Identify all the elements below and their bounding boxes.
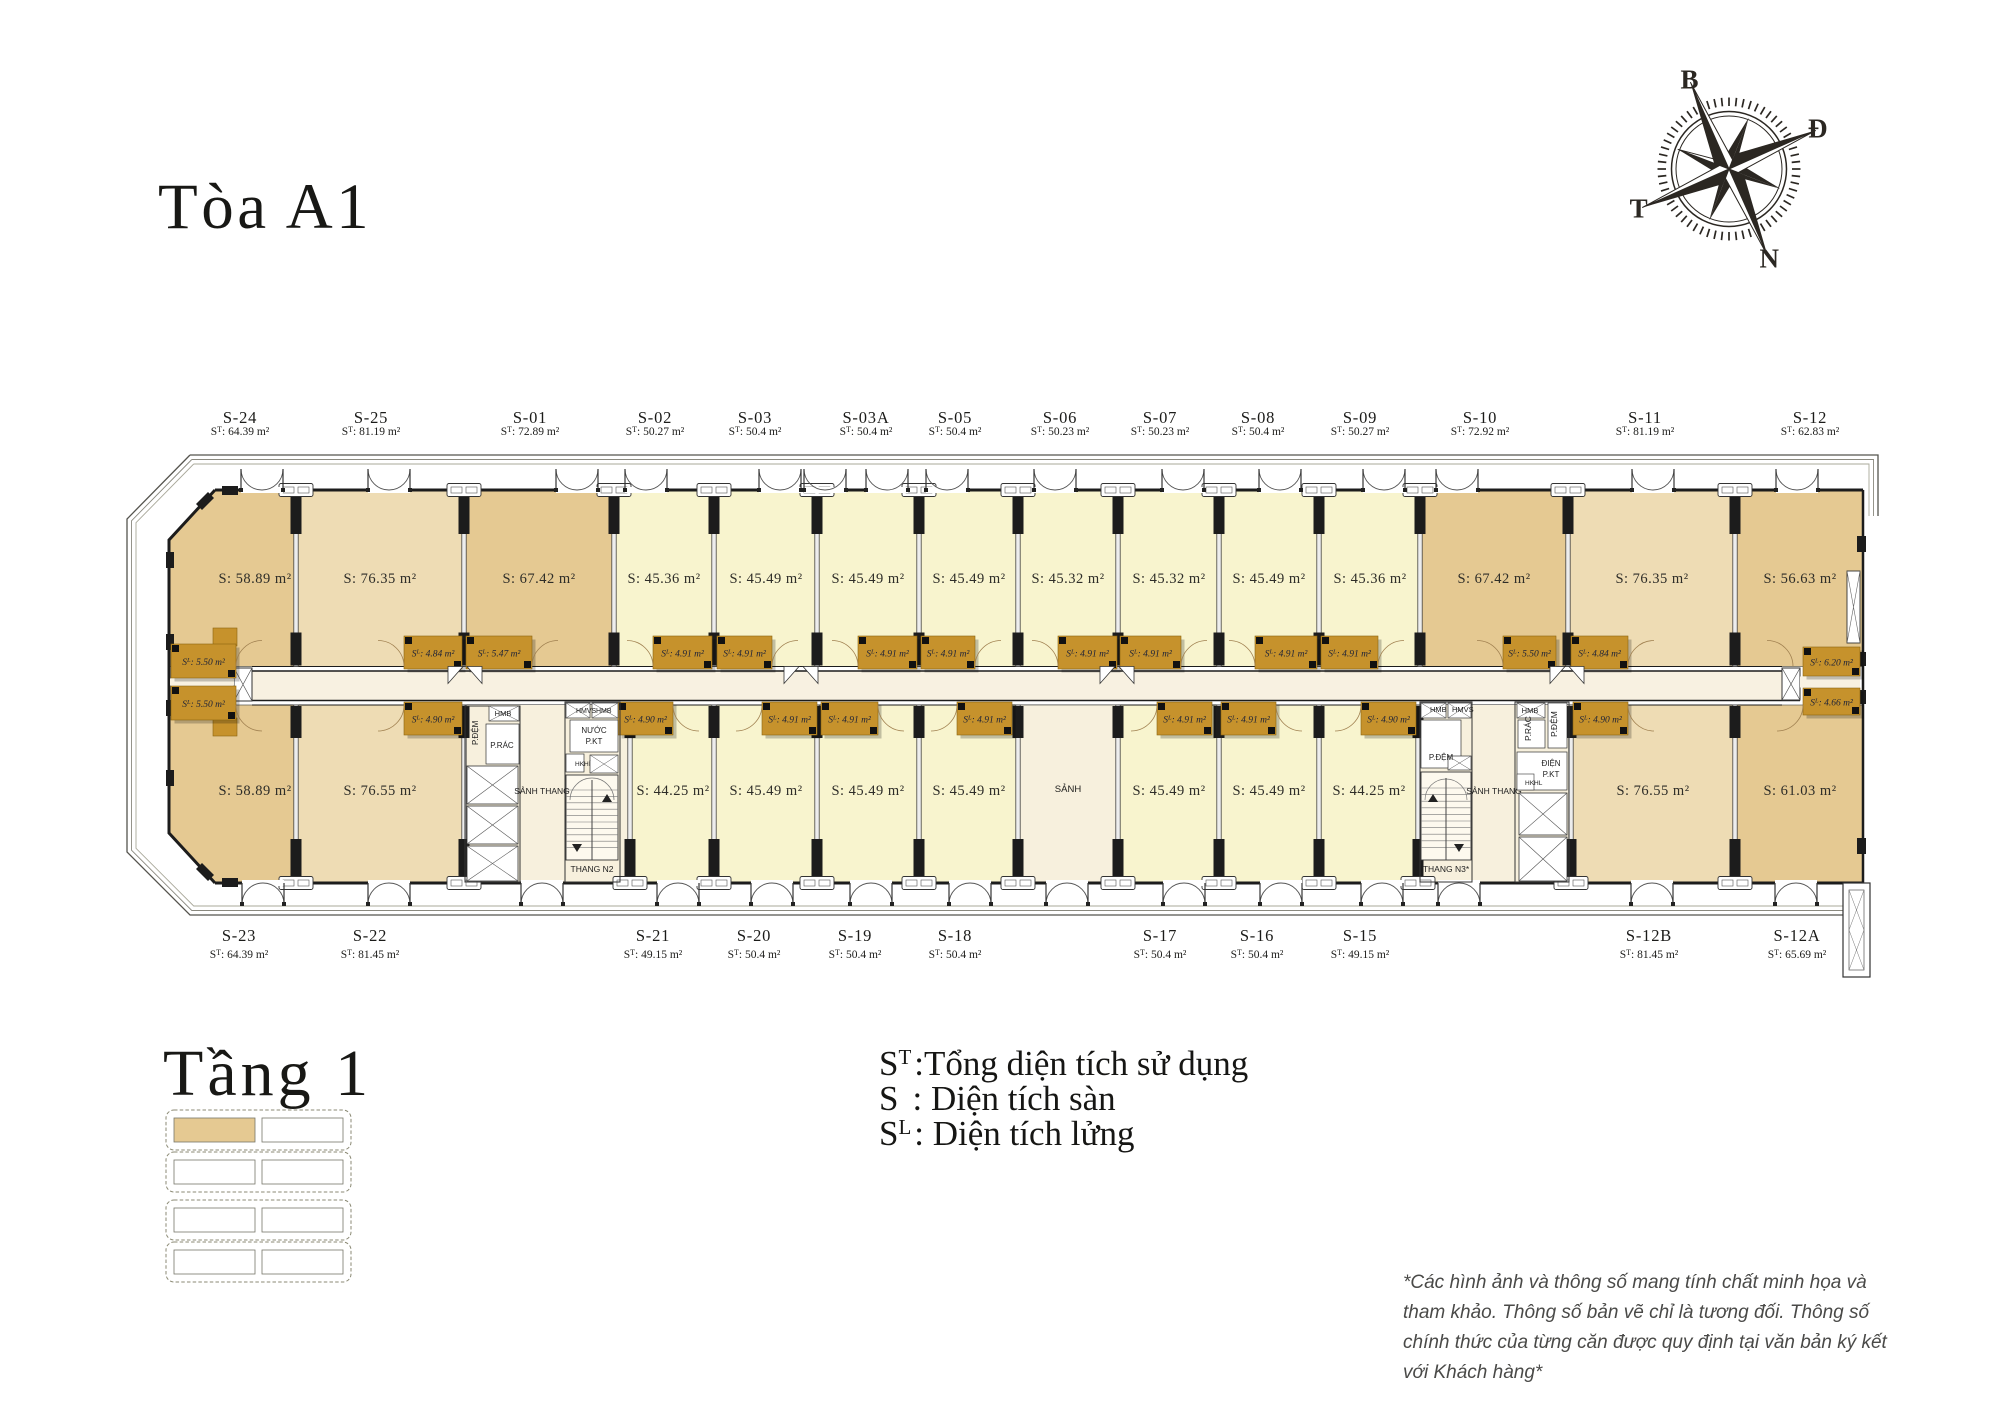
svg-text:ST: 50.4 m²: ST: 50.4 m²: [1231, 948, 1284, 961]
svg-text:S-12A: S-12A: [1773, 926, 1820, 945]
svg-text:S: 45.49 m²: S: 45.49 m²: [932, 571, 1005, 587]
svg-text:S-05: S-05: [938, 408, 972, 427]
svg-text:S: 76.55 m²: S: 76.55 m²: [1616, 783, 1689, 799]
svg-text:S-21: S-21: [636, 926, 670, 945]
svg-text:S-25: S-25: [354, 408, 388, 427]
svg-text:SL: Diện tích lửng: SL: Diện tích lửng: [879, 1114, 1134, 1153]
svg-text:ST: 62.83 m²: ST: 62.83 m²: [1781, 425, 1840, 438]
svg-text:tham khảo. Thông số bản vẽ chỉ: tham khảo. Thông số bản vẽ chỉ là tương …: [1403, 1302, 1871, 1323]
svg-text:ST:Tổng diện tích sử dụng: ST:Tổng diện tích sử dụng: [879, 1044, 1248, 1083]
svg-text:S-10: S-10: [1463, 408, 1497, 427]
svg-text:NƯỚC: NƯỚC: [581, 726, 606, 735]
svg-text:S: 76.35 m²: S: 76.35 m²: [1615, 571, 1688, 587]
svg-text:S: 58.89 m²: S: 58.89 m²: [218, 571, 291, 587]
svg-text:S: 45.32 m²: S: 45.32 m²: [1031, 571, 1104, 587]
svg-text:ST: 49.15 m²: ST: 49.15 m²: [624, 948, 683, 961]
svg-text:B: B: [1680, 65, 1698, 95]
svg-text:ĐIỆN: ĐIỆN: [1541, 759, 1560, 768]
svg-text:ST: 50.4 m²: ST: 50.4 m²: [1134, 948, 1187, 961]
svg-text:S-09: S-09: [1343, 408, 1377, 427]
svg-text:HMB: HMB: [495, 709, 512, 718]
svg-text:ST: 50.4 m²: ST: 50.4 m²: [729, 425, 782, 438]
svg-text:S: 45.49 m²: S: 45.49 m²: [729, 571, 802, 587]
svg-text:S-19: S-19: [838, 926, 872, 945]
svg-text:S: 45.49 m²: S: 45.49 m²: [729, 783, 802, 799]
svg-text:S-12B: S-12B: [1626, 926, 1672, 945]
svg-text:ST: 64.39 m²: ST: 64.39 m²: [211, 425, 270, 438]
svg-text:S-15: S-15: [1343, 926, 1377, 945]
svg-text:ST: 81.19 m²: ST: 81.19 m²: [342, 425, 401, 438]
svg-text:S-24: S-24: [223, 408, 257, 427]
svg-text:*Các hình ảnh và thông số mang: *Các hình ảnh và thông số mang tính chất…: [1403, 1272, 1867, 1293]
svg-text:SẢNH: SẢNH: [1055, 783, 1082, 795]
svg-text:SẢNH THANG: SẢNH THANG: [1466, 785, 1522, 796]
svg-text:ST: 64.39 m²: ST: 64.39 m²: [210, 948, 269, 961]
svg-text:S-06: S-06: [1043, 408, 1077, 427]
svg-text:HMB: HMB: [1522, 706, 1539, 715]
svg-text:S: 61.03 m²: S: 61.03 m²: [1763, 783, 1836, 799]
svg-text:ST: 50.4 m²: ST: 50.4 m²: [840, 425, 893, 438]
svg-text:P.RÁC: P.RÁC: [1523, 716, 1533, 741]
svg-text:ST: 50.27 m²: ST: 50.27 m²: [1331, 425, 1390, 438]
svg-text:S: 45.49 m²: S: 45.49 m²: [1132, 783, 1205, 799]
svg-text:HMVS: HMVS: [1452, 705, 1474, 714]
svg-text:ST: 50.4 m²: ST: 50.4 m²: [728, 948, 781, 961]
svg-text:P.ĐỆM: P.ĐỆM: [471, 720, 480, 745]
svg-text:S: 76.55 m²: S: 76.55 m²: [343, 783, 416, 799]
svg-text:ST: 50.23 m²: ST: 50.23 m²: [1031, 425, 1090, 438]
svg-text:P.KT: P.KT: [1543, 770, 1560, 779]
svg-text:ST: 50.4 m²: ST: 50.4 m²: [1232, 425, 1285, 438]
svg-text:HMVS: HMVS: [576, 708, 597, 715]
svg-text:S-22: S-22: [353, 926, 387, 945]
svg-text:ST: 50.4 m²: ST: 50.4 m²: [829, 948, 882, 961]
svg-text:ST: 49.15 m²: ST: 49.15 m²: [1331, 948, 1390, 961]
svg-text:S: 67.42 m²: S: 67.42 m²: [1457, 571, 1530, 587]
svg-text:S: 45.49 m²: S: 45.49 m²: [932, 783, 1005, 799]
svg-text:Đ: Đ: [1808, 114, 1828, 144]
svg-text:S-03: S-03: [738, 408, 772, 427]
svg-text:THANG N3*: THANG N3*: [1423, 864, 1470, 874]
svg-text:S: 45.49 m²: S: 45.49 m²: [831, 783, 904, 799]
svg-text:THANG N2: THANG N2: [571, 864, 614, 874]
svg-text:S-08: S-08: [1241, 408, 1275, 427]
svg-text:ST: 65.69 m²: ST: 65.69 m²: [1768, 948, 1827, 961]
svg-text:SẢNH THANG: SẢNH THANG: [514, 785, 570, 796]
svg-text:S: 45.32 m²: S: 45.32 m²: [1132, 571, 1205, 587]
svg-text:ST: 50.4 m²: ST: 50.4 m²: [929, 948, 982, 961]
svg-text:P.RÁC: P.RÁC: [490, 741, 514, 750]
svg-text:ST: 50.23 m²: ST: 50.23 m²: [1131, 425, 1190, 438]
svg-text:S: 56.63 m²: S: 56.63 m²: [1763, 571, 1836, 587]
svg-text:ST: 72.92 m²: ST: 72.92 m²: [1451, 425, 1510, 438]
svg-text:HKHÍ: HKHÍ: [575, 759, 591, 768]
svg-text:S-23: S-23: [222, 926, 256, 945]
svg-text:S: 45.49 m²: S: 45.49 m²: [1232, 783, 1305, 799]
svg-text:S-02: S-02: [638, 408, 672, 427]
svg-text:S-20: S-20: [737, 926, 771, 945]
svg-text:S: 58.89 m²: S: 58.89 m²: [218, 783, 291, 799]
svg-text:S-12: S-12: [1793, 408, 1827, 427]
svg-text:S-17: S-17: [1143, 926, 1177, 945]
svg-text:S: 45.36 m²: S: 45.36 m²: [627, 571, 700, 587]
svg-text:S: 44.25 m²: S: 44.25 m²: [1332, 783, 1405, 799]
svg-text:T: T: [1630, 194, 1648, 224]
svg-text:ST: 81.45 m²: ST: 81.45 m²: [1620, 948, 1679, 961]
svg-text:với Khách hàng*: với Khách hàng*: [1403, 1362, 1543, 1383]
svg-text:chính thức của từng căn được q: chính thức của từng căn được quy định tạ…: [1403, 1332, 1888, 1353]
svg-text:HKHL: HKHL: [1525, 780, 1543, 787]
svg-text:S-18: S-18: [938, 926, 972, 945]
svg-text:S: Diện tích sàn: S: Diện tích sàn: [879, 1079, 1116, 1118]
svg-text:ST: 50.27 m²: ST: 50.27 m²: [626, 425, 685, 438]
svg-text:P.KT: P.KT: [586, 737, 603, 746]
svg-text:S: 45.49 m²: S: 45.49 m²: [1232, 571, 1305, 587]
svg-text:S: 44.25 m²: S: 44.25 m²: [636, 783, 709, 799]
svg-text:S-01: S-01: [513, 408, 547, 427]
svg-text:ST: 50.4 m²: ST: 50.4 m²: [929, 425, 982, 438]
svg-text:P.ĐỆM: P.ĐỆM: [1429, 753, 1454, 762]
svg-text:S-11: S-11: [1628, 408, 1662, 427]
svg-text:N: N: [1760, 244, 1780, 274]
svg-text:S: 76.35 m²: S: 76.35 m²: [343, 571, 416, 587]
svg-text:S-16: S-16: [1240, 926, 1274, 945]
svg-text:S: 67.42 m²: S: 67.42 m²: [502, 571, 575, 587]
svg-text:P.ĐỆM: P.ĐỆM: [1549, 711, 1559, 737]
svg-text:ST: 81.19 m²: ST: 81.19 m²: [1616, 425, 1675, 438]
svg-text:HMB: HMB: [596, 708, 612, 715]
svg-text:Tòa A1: Tòa A1: [158, 171, 372, 243]
svg-text:Tầng 1: Tầng 1: [163, 1037, 372, 1110]
svg-text:S: 45.49 m²: S: 45.49 m²: [831, 571, 904, 587]
svg-text:ST: 72.89 m²: ST: 72.89 m²: [501, 425, 560, 438]
svg-text:S: 45.36 m²: S: 45.36 m²: [1333, 571, 1406, 587]
svg-text:S-07: S-07: [1143, 408, 1177, 427]
svg-text:ST: 81.45 m²: ST: 81.45 m²: [341, 948, 400, 961]
svg-text:HMB: HMB: [1430, 705, 1447, 714]
